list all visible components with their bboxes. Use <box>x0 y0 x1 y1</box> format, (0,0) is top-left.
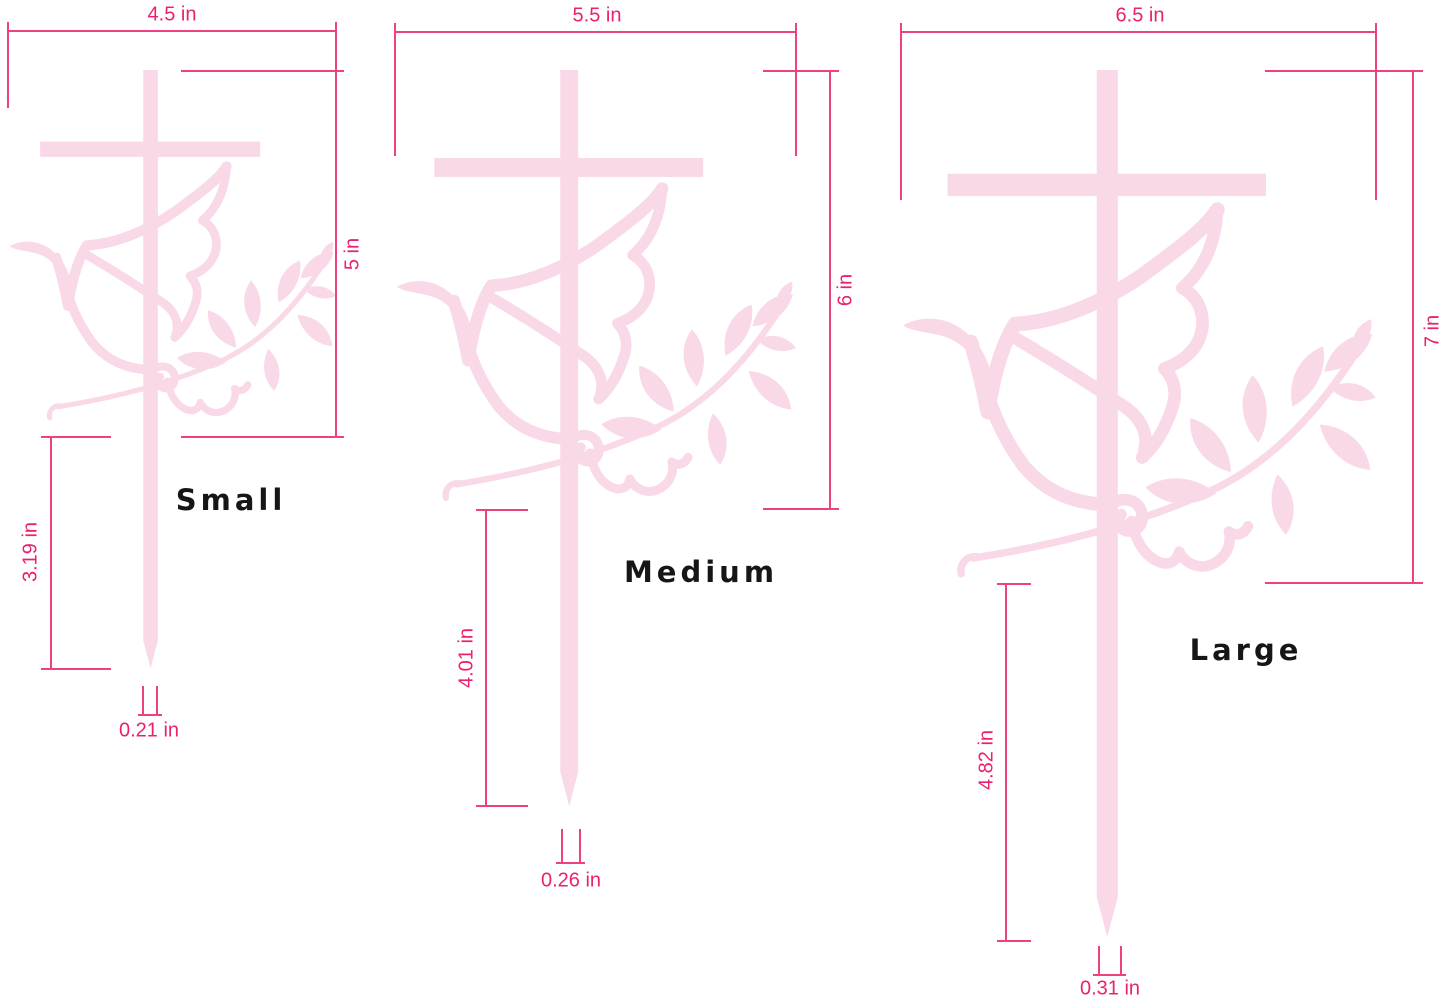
large-tip-dim-line <box>1093 974 1126 976</box>
large-size-label: Large <box>1190 633 1303 667</box>
small-size-label: Small <box>176 483 287 517</box>
large-tip-dim-label: 0.31 in <box>1080 978 1140 998</box>
large-width-dim-line <box>901 31 1377 33</box>
medium-width-dim-tick-right <box>795 23 797 156</box>
medium-height-dim-line <box>829 71 831 509</box>
medium-height-dim-tick-bottom <box>763 508 839 510</box>
small-stake-dim-line <box>50 437 52 669</box>
medium-stake-dim-tick-top <box>476 509 528 511</box>
medium-width-dim-tick-left <box>394 23 396 156</box>
medium-stake-dim-tick-bottom <box>476 805 528 807</box>
small-stake-dim-tick-bottom <box>41 668 111 670</box>
large-height-dim-tick-top <box>1265 70 1423 72</box>
medium-width-dim-label: 5.5 in <box>573 5 622 28</box>
small-height-dim-tick-top <box>181 70 344 72</box>
small-stake-dim-tick-top <box>41 436 111 438</box>
medium-size-label: Medium <box>624 555 778 589</box>
medium-tip-dim-tick-right <box>579 829 581 864</box>
large-stake-dim-tick-bottom <box>997 940 1031 942</box>
large-width-dim-label: 6.5 in <box>1116 5 1165 28</box>
large-stake-dim-line <box>1005 584 1007 941</box>
large-width-dim-tick-right <box>1375 23 1377 200</box>
medium-tip-dim-tick-left <box>561 829 563 864</box>
small-tip-dim-label: 0.21 in <box>119 720 179 743</box>
small-width-dim-tick-left <box>7 22 9 108</box>
large-tip-dim-tick-left <box>1098 946 1100 976</box>
large-stake-dim-tick-top <box>997 583 1031 585</box>
medium-cross-dove-artwork <box>395 70 797 807</box>
large-height-dim-label: 7 in <box>1422 315 1445 347</box>
large-stake-dim-label: 4.82 in <box>976 730 999 790</box>
small-width-dim-label: 4.5 in <box>148 4 197 27</box>
small-height-dim-label: 5 in <box>342 238 365 270</box>
small-width-dim-line <box>8 30 337 32</box>
small-cross-dove-artwork <box>8 70 337 669</box>
large-height-dim-line <box>1412 71 1414 583</box>
medium-height-dim-tick-top <box>763 70 839 72</box>
medium-stake-dim-label: 4.01 in <box>456 628 479 688</box>
medium-stake-dim-line <box>485 510 487 806</box>
medium-width-dim-line <box>395 31 797 33</box>
small-tip-dim-line <box>138 714 162 716</box>
small-tip-dim-tick-left <box>142 686 144 716</box>
large-cross-dove-artwork <box>901 70 1377 938</box>
large-tip-dim-tick-right <box>1120 946 1122 976</box>
small-stake-dim-label: 3.19 in <box>20 522 43 582</box>
medium-tip-dim-label: 0.26 in <box>541 870 601 893</box>
size-diagram-canvas: 4.5 in 5 in 3.19 in 0.21 in Small 5.5 in… <box>0 0 1445 998</box>
medium-height-dim-label: 6 in <box>835 274 858 306</box>
large-width-dim-tick-left <box>900 23 902 200</box>
small-height-dim-tick-bottom <box>181 436 344 438</box>
small-tip-dim-tick-right <box>156 686 158 716</box>
medium-tip-dim-line <box>556 862 585 864</box>
large-height-dim-tick-bottom <box>1265 582 1423 584</box>
small-height-dim-line <box>335 22 337 437</box>
